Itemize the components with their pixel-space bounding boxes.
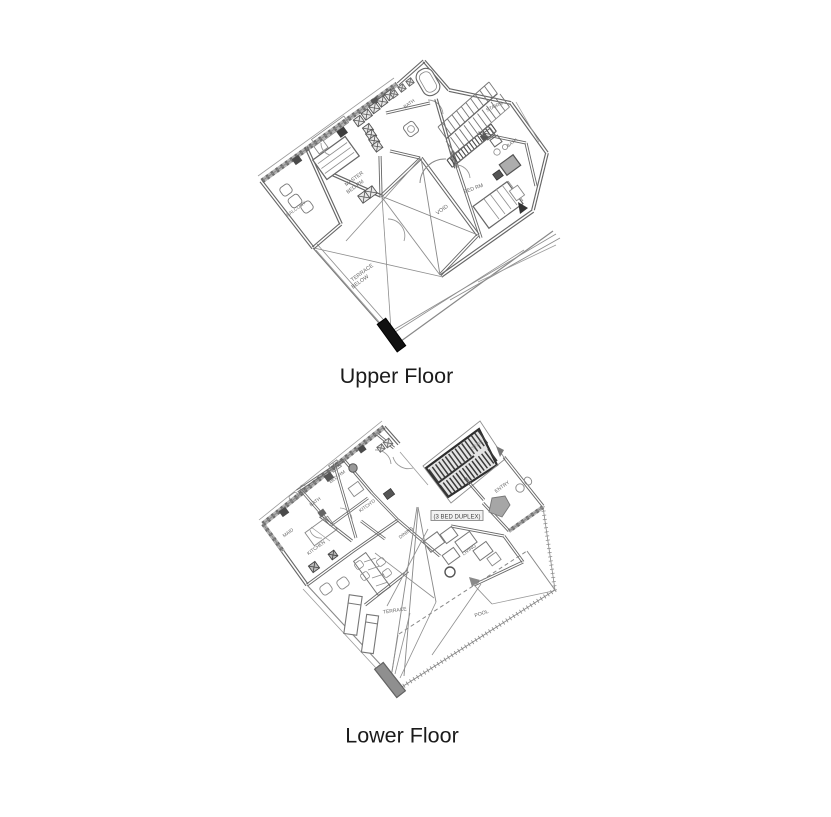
svg-text:(3 BED DUPLEX): (3 BED DUPLEX) <box>433 515 480 521</box>
svg-text:Lower Floor: Lower Floor <box>345 724 459 748</box>
svg-text:MAID: MAID <box>282 527 296 539</box>
svg-text:POOL: POOL <box>474 609 490 619</box>
svg-text:KITCHEN: KITCHEN <box>306 539 327 557</box>
svg-text:Upper Floor: Upper Floor <box>340 364 454 388</box>
svg-text:TERRACE: TERRACE <box>383 606 408 615</box>
svg-text:LIVING: LIVING <box>461 543 477 557</box>
svg-text:ENTRY: ENTRY <box>494 479 512 494</box>
svg-text:BATH: BATH <box>309 496 323 508</box>
svg-text:VOID: VOID <box>435 204 449 217</box>
svg-text:BED RM: BED RM <box>463 183 484 196</box>
svg-text:KITCH'D: KITCH'D <box>358 498 377 514</box>
